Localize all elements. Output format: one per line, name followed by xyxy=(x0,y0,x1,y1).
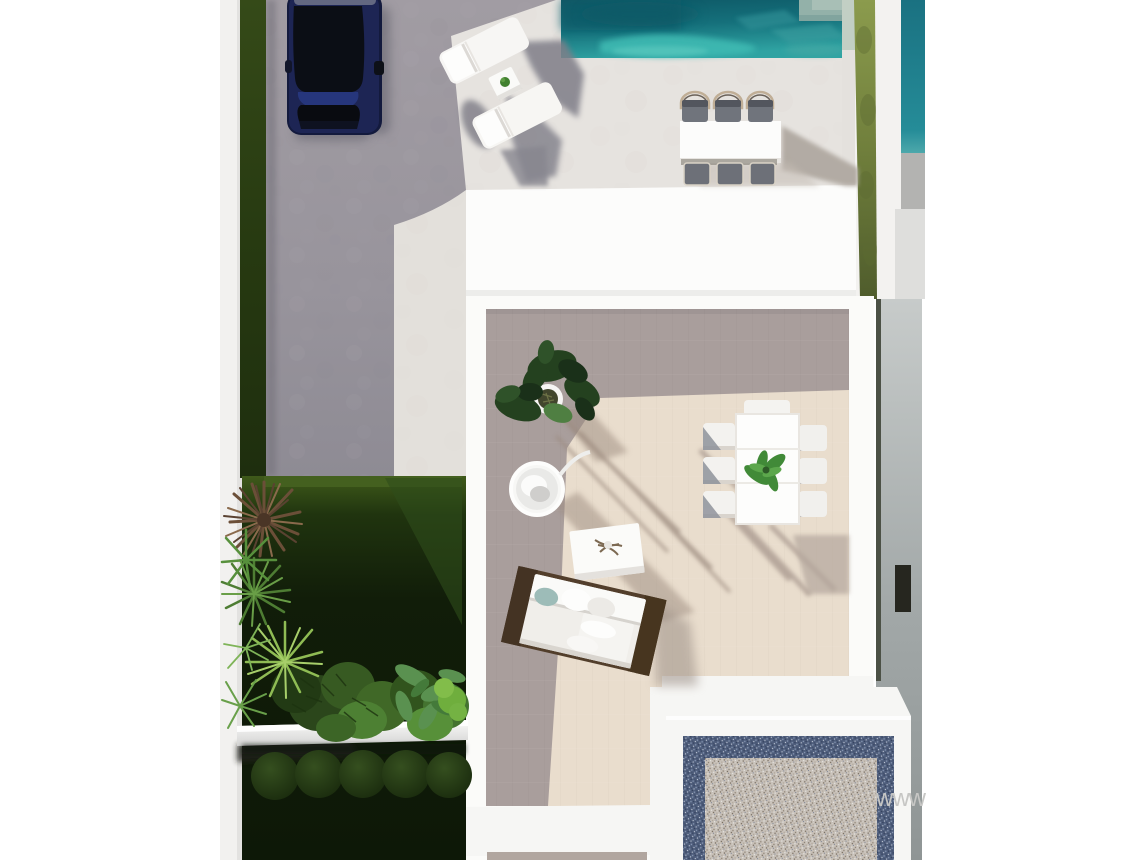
svg-text:www: www xyxy=(875,785,927,812)
